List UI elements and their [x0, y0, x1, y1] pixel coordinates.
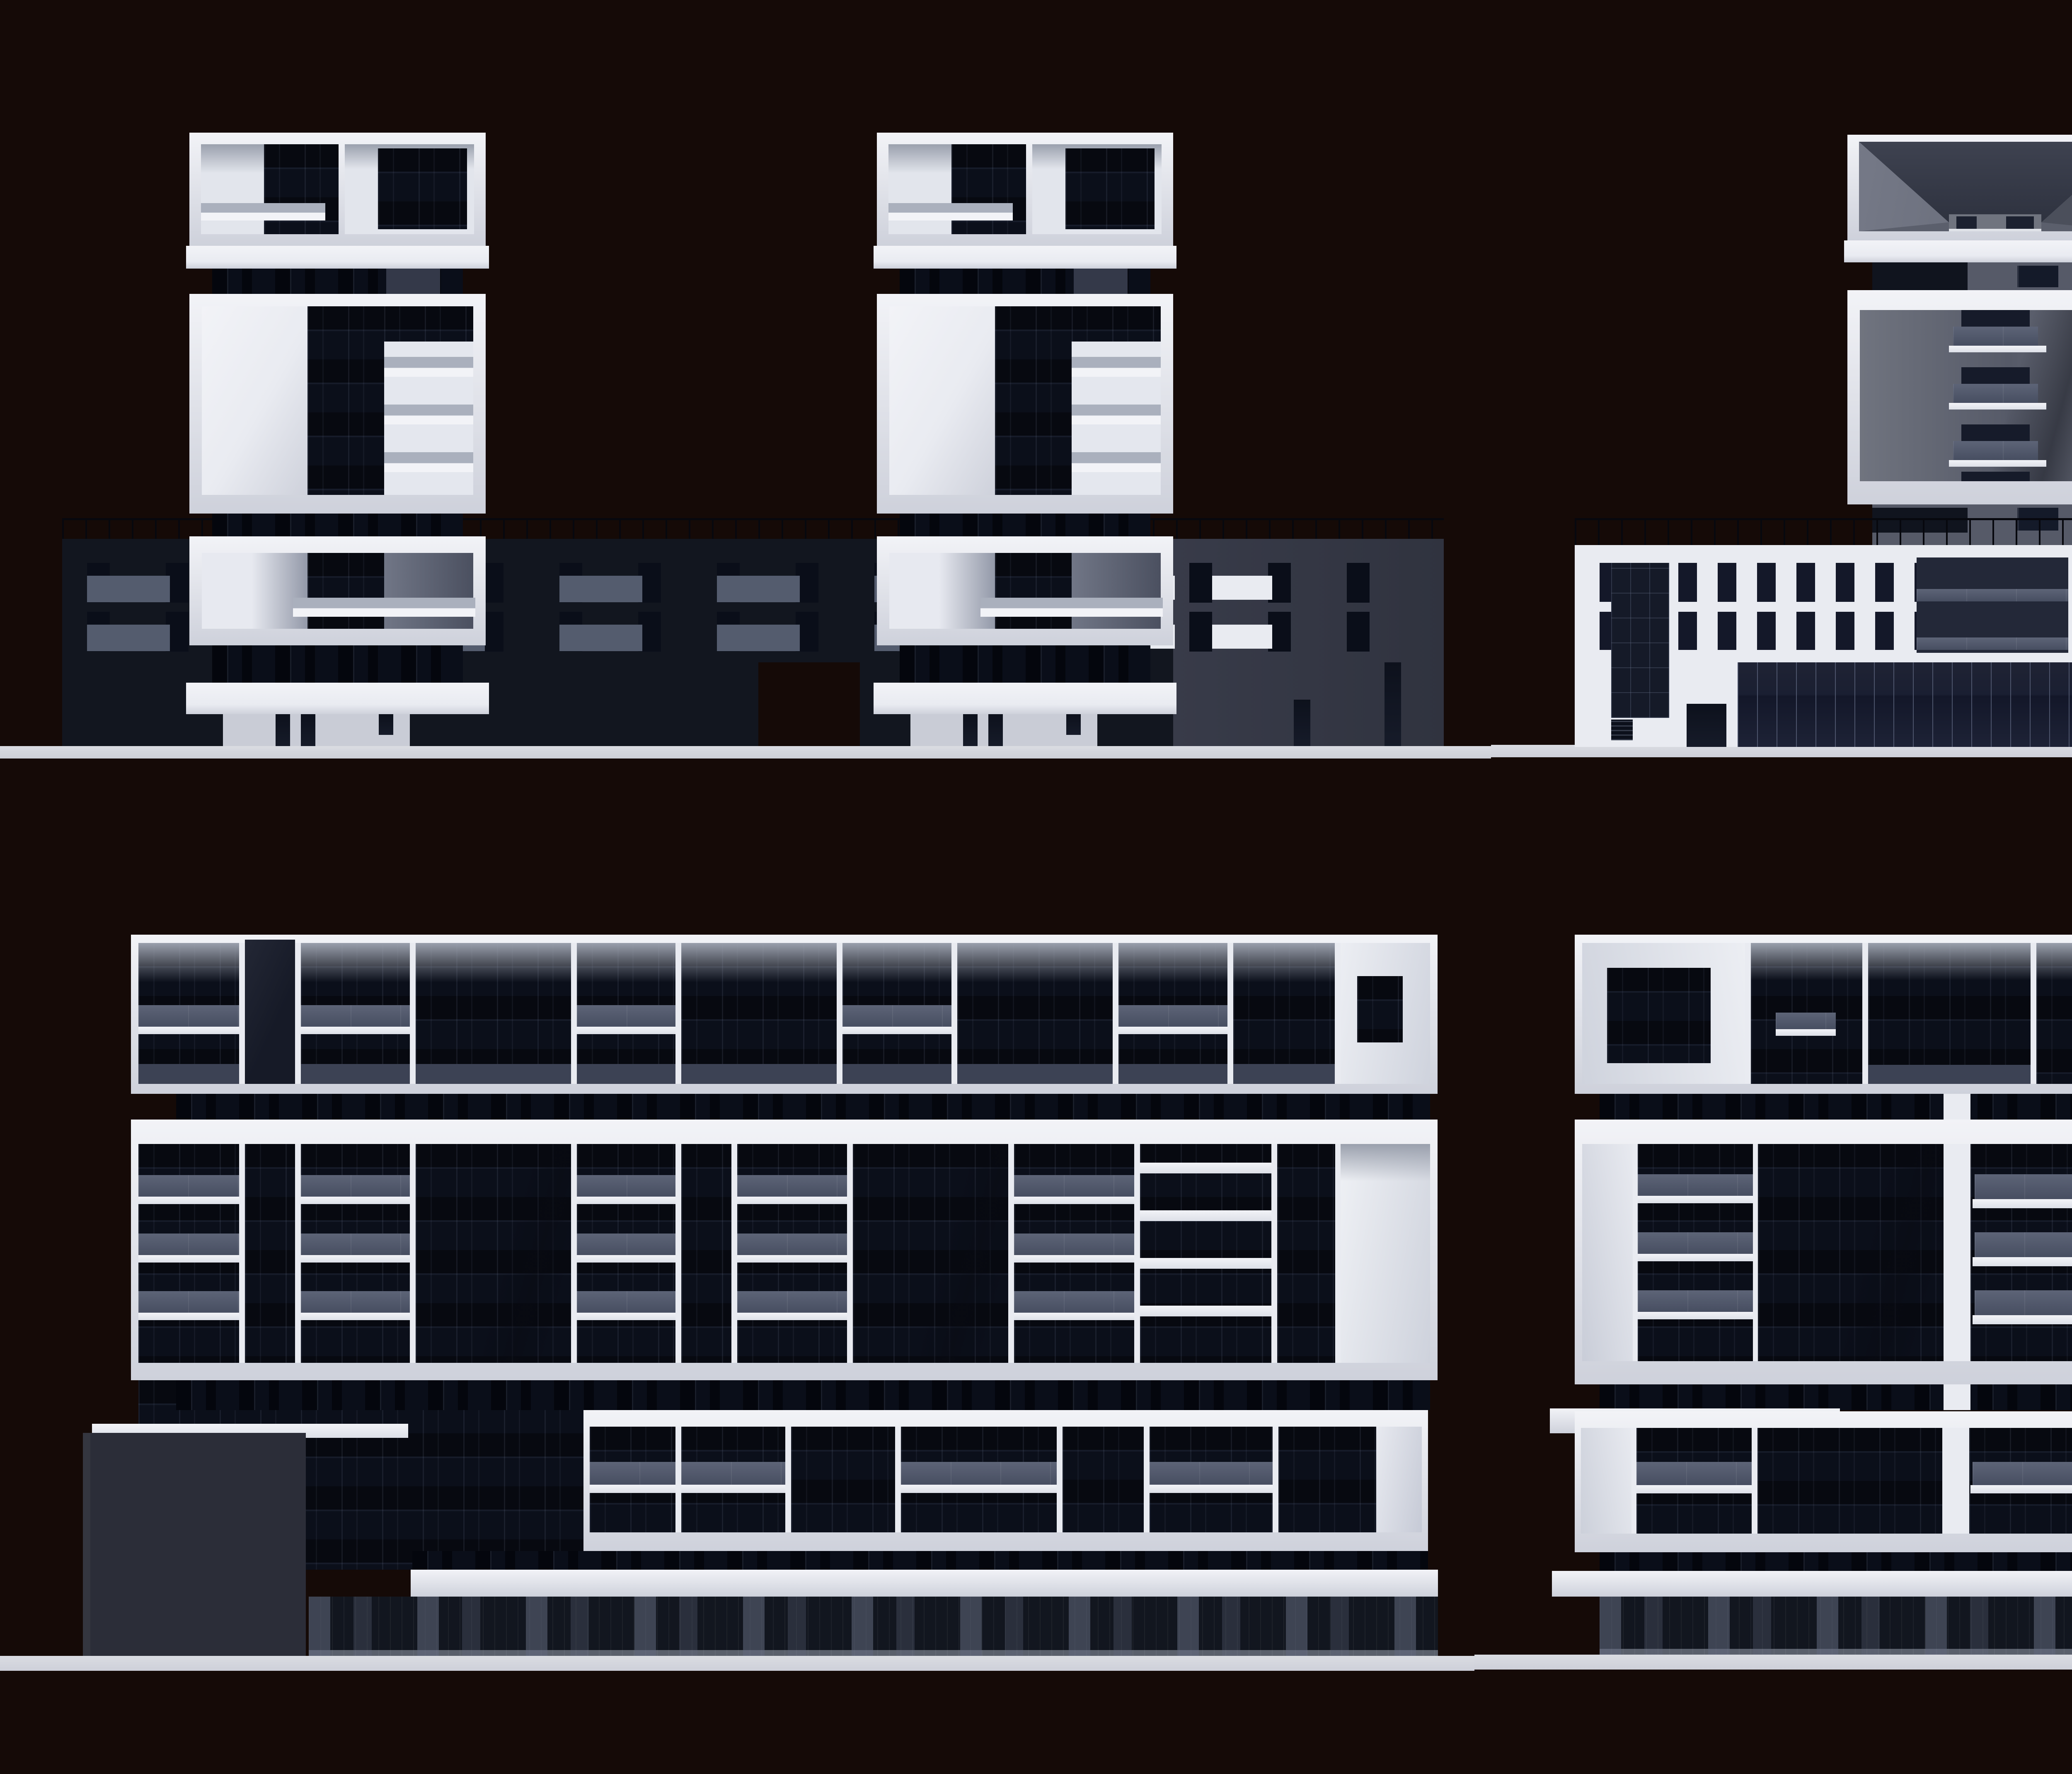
slab-2: [1973, 1257, 2072, 1266]
tower-base-band: [186, 683, 489, 714]
glass: [590, 1462, 675, 1485]
balcony-bay: [1636, 1428, 1752, 1534]
top-box-left-loggia: [888, 144, 1026, 234]
bay-ceiling: [681, 943, 837, 982]
glass-3a: [1975, 1290, 2072, 1315]
bay-slab: [842, 1027, 951, 1034]
neck-3: [412, 1551, 1428, 1570]
bay-glass: [138, 1005, 239, 1027]
base-door-1: [276, 714, 290, 746]
balcony-glass-3: [1953, 441, 2038, 460]
bay-ceiling: [416, 943, 571, 982]
panel-slab-block-b: [1492, 887, 2072, 1675]
slab-2: [1014, 1255, 1134, 1263]
tower-neck-1: [212, 269, 463, 294]
balcony-glass-2: [1953, 384, 2038, 403]
bright-bay-window: [1607, 968, 1711, 1063]
bay: [577, 943, 675, 1084]
podium-door-left: [1687, 704, 1726, 747]
slab-1: [301, 1197, 410, 1204]
balcony-bay: [1150, 1427, 1273, 1532]
top-band: [131, 935, 1438, 1094]
loggia-balcony-slab-1: [1072, 357, 1161, 377]
tower-base-band: [874, 683, 1176, 714]
glass-2: [1638, 1232, 1753, 1254]
bay: [1868, 943, 2031, 1084]
glass-2: [1014, 1234, 1134, 1255]
slab-1: [1973, 1199, 2072, 1208]
balcony-glass-1: [1953, 327, 2038, 346]
bay-glass: [577, 1005, 675, 1027]
bay-slab: [138, 1027, 239, 1034]
slab-2: [1638, 1254, 1753, 1261]
stacked-balcony-bay: [1140, 1144, 1271, 1363]
slab: [1636, 1485, 1752, 1493]
bay: [301, 943, 410, 1084]
glass-2: [577, 1234, 675, 1255]
tower-front-1: [189, 0, 486, 759]
bay-base: [1118, 1064, 1227, 1084]
glass-1: [301, 1175, 410, 1197]
ground-floor-glazing: [1600, 1597, 2072, 1655]
plain-bay: [1758, 1144, 1944, 1361]
middle-glazing-column: [995, 306, 1072, 495]
slab-3: [1973, 1315, 2072, 1324]
bay-ceiling: [2036, 943, 2072, 980]
bay: [1118, 943, 1227, 1084]
pier-1b: [1944, 1384, 1970, 1410]
band-interior: [1582, 943, 2072, 1084]
bay-ceiling: [1233, 943, 1335, 982]
bay-shadow: [1758, 1144, 1944, 1361]
slab-1: [737, 1197, 847, 1204]
tower-neck-2: [212, 514, 463, 536]
lower-glazing-column: [307, 553, 384, 629]
bay-base: [681, 1064, 837, 1084]
bright-ceiling: [1341, 1144, 1430, 1181]
bay-glass: [1118, 1005, 1227, 1027]
bay: [2036, 943, 2072, 1084]
glass: [901, 1462, 1057, 1485]
bay: [1233, 943, 1335, 1084]
elevation-sheet: [0, 0, 2072, 1774]
mini-slab: [1776, 1029, 1836, 1036]
back-wall-window-2: [2006, 216, 2034, 229]
lower-box-interior: [889, 553, 1161, 629]
glass-2a: [1975, 1232, 2072, 1257]
plain-bay: [416, 1144, 571, 1363]
tower-neck-3: [212, 645, 463, 683]
balcony-slab-1: [1949, 346, 2046, 352]
stack-slab-1: [1140, 1163, 1271, 1173]
glass-1: [577, 1175, 675, 1197]
slab-3: [301, 1313, 410, 1320]
balcony-bay: [301, 1144, 410, 1363]
slab: [1970, 1485, 2072, 1493]
bay-base: [957, 1064, 1113, 1084]
balcony-bay: [590, 1427, 675, 1532]
bay-shadow: [853, 1144, 1008, 1363]
plain-bay: [853, 1144, 1008, 1363]
loggia-balcony-slab-3: [1072, 452, 1161, 472]
neck-window-pair: [2017, 266, 2058, 287]
loggia-glazing: [1072, 306, 1161, 342]
slab-1: [577, 1197, 675, 1204]
balcony-slab-2: [1949, 403, 2046, 410]
balcony-bay: [1014, 1144, 1134, 1363]
bay-slab: [301, 1027, 410, 1034]
slab-2: [737, 1255, 847, 1263]
glass-3: [737, 1291, 847, 1313]
balcony-bay: [577, 1144, 675, 1363]
bay-base: [301, 1064, 410, 1084]
bright-strip: [1376, 1427, 1422, 1532]
glass-1a: [1975, 1174, 2072, 1199]
loggia-glazing: [951, 144, 1026, 234]
slab-3: [1638, 1312, 1753, 1319]
neck-dark-block: [1872, 262, 1968, 290]
tower-neck-2: [900, 514, 1150, 536]
stack-slab-4: [1140, 1306, 1271, 1316]
loggia-balcony-slab-2: [1072, 405, 1161, 424]
neck-1: [1600, 1094, 2072, 1120]
wide-balcony-bay: [1970, 1144, 2072, 1361]
loggia-back-wall: [1949, 214, 2041, 231]
slab-1: [138, 1197, 239, 1204]
neck-2: [176, 1380, 1430, 1410]
base-door-2: [301, 714, 315, 746]
podium-roof-railing-posts: [1575, 519, 2072, 545]
glass-1: [138, 1175, 239, 1197]
panel-slab-block-a: [0, 887, 1492, 1675]
bay: [842, 943, 951, 1084]
slab-3: [577, 1313, 675, 1320]
plain-bay: [1757, 1428, 1942, 1534]
mini-glass: [1776, 1013, 1836, 1029]
slab: [590, 1485, 675, 1493]
slab-3: [737, 1313, 847, 1320]
balcony-stack: [1953, 310, 2038, 481]
glass: [1636, 1462, 1752, 1485]
bay-base: [842, 1064, 951, 1084]
podium-storefront-left: [1738, 662, 2072, 747]
middle-band: [1575, 1120, 2072, 1384]
bay-ceiling: [301, 943, 410, 982]
lower-band: [583, 1410, 1428, 1551]
tower-rear-1: [1847, 0, 2072, 580]
bay-ceiling: [957, 943, 1113, 982]
bay-base: [416, 1064, 571, 1084]
podium-door-2: [1385, 662, 1401, 746]
stack-slab-3: [1140, 1258, 1271, 1269]
lower-balcony-slab: [980, 598, 1163, 617]
glass-3: [577, 1291, 675, 1313]
loggia-balcony-slab-3: [384, 452, 473, 472]
podium-curtainwall-left: [1611, 563, 1669, 718]
top-box-left-loggia: [201, 144, 339, 234]
lower-glazing-column: [995, 553, 1072, 629]
slab-2: [577, 1255, 675, 1263]
neck-3: [1600, 1552, 2072, 1571]
bay-ceiling: [1751, 943, 1862, 980]
tower-lower-box: [877, 536, 1173, 645]
tower-front-2: [877, 0, 1173, 759]
bay-ceiling: [1118, 943, 1227, 982]
middle-glazing-column: [307, 306, 384, 495]
plinth-slab-band: [1552, 1571, 2072, 1597]
top-box-right-loggia: [345, 144, 474, 234]
slab: [681, 1485, 785, 1493]
tower-middle-box: [1847, 290, 2072, 504]
tower-ledge: [874, 246, 1176, 269]
pier-1: [1944, 1094, 1970, 1120]
loggia-balustrade-2: [1917, 637, 2068, 650]
loggia-balcony-slab: [201, 203, 325, 221]
tower-neck-1: [900, 269, 1150, 294]
podium-vent-left: [1611, 720, 1633, 740]
glass-3: [1638, 1290, 1753, 1312]
neck-1: [176, 1094, 1430, 1120]
tower-neck-1: [1872, 262, 2072, 290]
bay-glass: [842, 1005, 951, 1027]
tower-top-box: [877, 133, 1173, 246]
glass: [681, 1462, 785, 1485]
bay: [138, 943, 239, 1084]
plain-bay: [1063, 1427, 1144, 1532]
tower-top-box: [189, 133, 486, 246]
balcony-window-2: [1961, 367, 2030, 384]
band-interior: [138, 943, 1430, 1084]
balcony-slab-3: [1949, 460, 2046, 467]
loggia-glazing: [264, 144, 339, 234]
back-wall-window-1: [1956, 216, 1977, 229]
tower-middle-box: [877, 294, 1173, 514]
bay-ceiling: [577, 943, 675, 982]
glass-1: [1014, 1175, 1134, 1197]
glass-1: [737, 1175, 847, 1197]
band-interior: [590, 1427, 1422, 1532]
middle-bright-wall: [202, 306, 307, 495]
slab-3: [138, 1313, 239, 1320]
shaft-bay: [245, 1144, 295, 1363]
back-wall-railing: [1949, 229, 2041, 231]
slab-2: [138, 1255, 239, 1263]
bay-glass: [301, 1005, 410, 1027]
bay: [416, 943, 571, 1084]
podium-passage: [758, 662, 860, 746]
balcony-bay: [1638, 1144, 1753, 1361]
bright-bay-window: [1357, 976, 1403, 1042]
loggia-balcony-slab-2: [384, 405, 473, 424]
bay-base: [1233, 1064, 1335, 1084]
podium-door-1: [1294, 700, 1310, 746]
base-door-2: [988, 714, 1003, 746]
neck-2: [1600, 1384, 2072, 1410]
panel-tower-pair-front: [0, 0, 1492, 759]
bay-mini-slab: [1751, 943, 1862, 1084]
bay-ceiling: [138, 943, 239, 982]
neck-light-block: [386, 269, 440, 294]
base-door-1: [963, 714, 978, 746]
middle-interior: [1860, 310, 2072, 481]
band-interior: [1582, 1144, 2072, 1361]
loggia-balcony-slab-1: [384, 357, 473, 377]
band-interior: [1581, 1428, 2072, 1534]
stack-slab-2: [1140, 1210, 1271, 1221]
glass-3: [301, 1291, 410, 1313]
tower-ledge: [1844, 240, 2072, 262]
lower-box-interior: [202, 553, 473, 629]
bay-bright-end: [1341, 943, 1430, 1084]
balcony-window-3: [1961, 424, 2030, 441]
glass-2: [301, 1234, 410, 1255]
bay: [681, 943, 837, 1084]
balcony-window-1: [1961, 310, 2030, 327]
base-window: [379, 714, 393, 735]
lower-band: [1575, 1411, 2072, 1552]
bay-slab: [577, 1027, 675, 1034]
glass: [1150, 1462, 1273, 1485]
tower-top-box: [1847, 135, 2072, 240]
dark-tower: [83, 1433, 306, 1656]
band-interior: [138, 1144, 1430, 1363]
loggia-glazing: [384, 306, 473, 342]
glass-1: [1638, 1174, 1753, 1196]
end-bay: [1278, 1427, 1422, 1532]
bay: [957, 943, 1113, 1084]
bay-shadow: [416, 1144, 571, 1363]
tower-ledge: [186, 246, 489, 269]
slab-2: [301, 1255, 410, 1263]
glass-2: [138, 1234, 239, 1255]
bright-left-wall: [1582, 1144, 1633, 1361]
balcony-window-4: [1961, 472, 2030, 481]
top-box-right-loggia: [1032, 144, 1162, 234]
loggia-balcony-slab: [888, 203, 1013, 221]
glass-3: [1014, 1291, 1134, 1313]
bright-left: [1581, 1428, 1631, 1534]
bay-shaft: [245, 940, 295, 1084]
ground-floor-glazing: [309, 1597, 1438, 1656]
loggia-glazing: [378, 148, 467, 229]
bay-base: [1868, 1065, 2031, 1084]
glass: [1973, 1462, 2072, 1485]
balcony-bay: [138, 1144, 239, 1363]
glass-2: [737, 1234, 847, 1255]
glass-3: [138, 1291, 239, 1313]
neck-light-block: [1074, 269, 1128, 294]
slab-1: [1014, 1197, 1134, 1204]
middle-band: [131, 1120, 1438, 1380]
tower-base: [910, 714, 1097, 746]
plain-bay: [1277, 1144, 1335, 1363]
balcony-bay: [1969, 1428, 2072, 1534]
bay-slab: [1118, 1027, 1227, 1034]
slab-1: [1638, 1196, 1753, 1203]
lower-balcony-slab: [293, 598, 475, 617]
middle-right-loggia: [384, 306, 473, 495]
slab: [901, 1485, 1057, 1493]
loggia-balustrade-1: [1917, 589, 2068, 601]
tower-neck-3: [900, 645, 1150, 683]
bay-ceiling: [842, 943, 951, 982]
bay-bright-end: [1341, 1144, 1430, 1363]
tower-lower-box: [189, 536, 486, 645]
balcony-bay: [737, 1144, 847, 1363]
middle-bright-wall: [889, 306, 995, 495]
bay-base: [577, 1064, 675, 1084]
tower-base: [223, 714, 410, 746]
plinth-slab-band: [411, 1570, 1438, 1597]
bay-ceiling: [1868, 943, 2031, 980]
loggia-glazing: [1065, 148, 1155, 229]
balcony-bay: [901, 1427, 1057, 1532]
top-band: [1575, 935, 2072, 1094]
bay-bright-end-left: [1582, 943, 1745, 1084]
plain-bay: [791, 1427, 895, 1532]
tower-middle-box: [189, 294, 486, 514]
bay-base: [138, 1064, 239, 1084]
slab-3: [1014, 1313, 1134, 1320]
base-window: [1066, 714, 1081, 735]
shaft-bay: [681, 1144, 731, 1363]
panel-tower-pair-rear: [1492, 0, 2072, 759]
middle-right-loggia: [1072, 306, 1161, 495]
top-box-loggia-perspective: [1859, 142, 2072, 231]
slab: [1150, 1485, 1273, 1493]
balcony-bay: [681, 1427, 785, 1532]
